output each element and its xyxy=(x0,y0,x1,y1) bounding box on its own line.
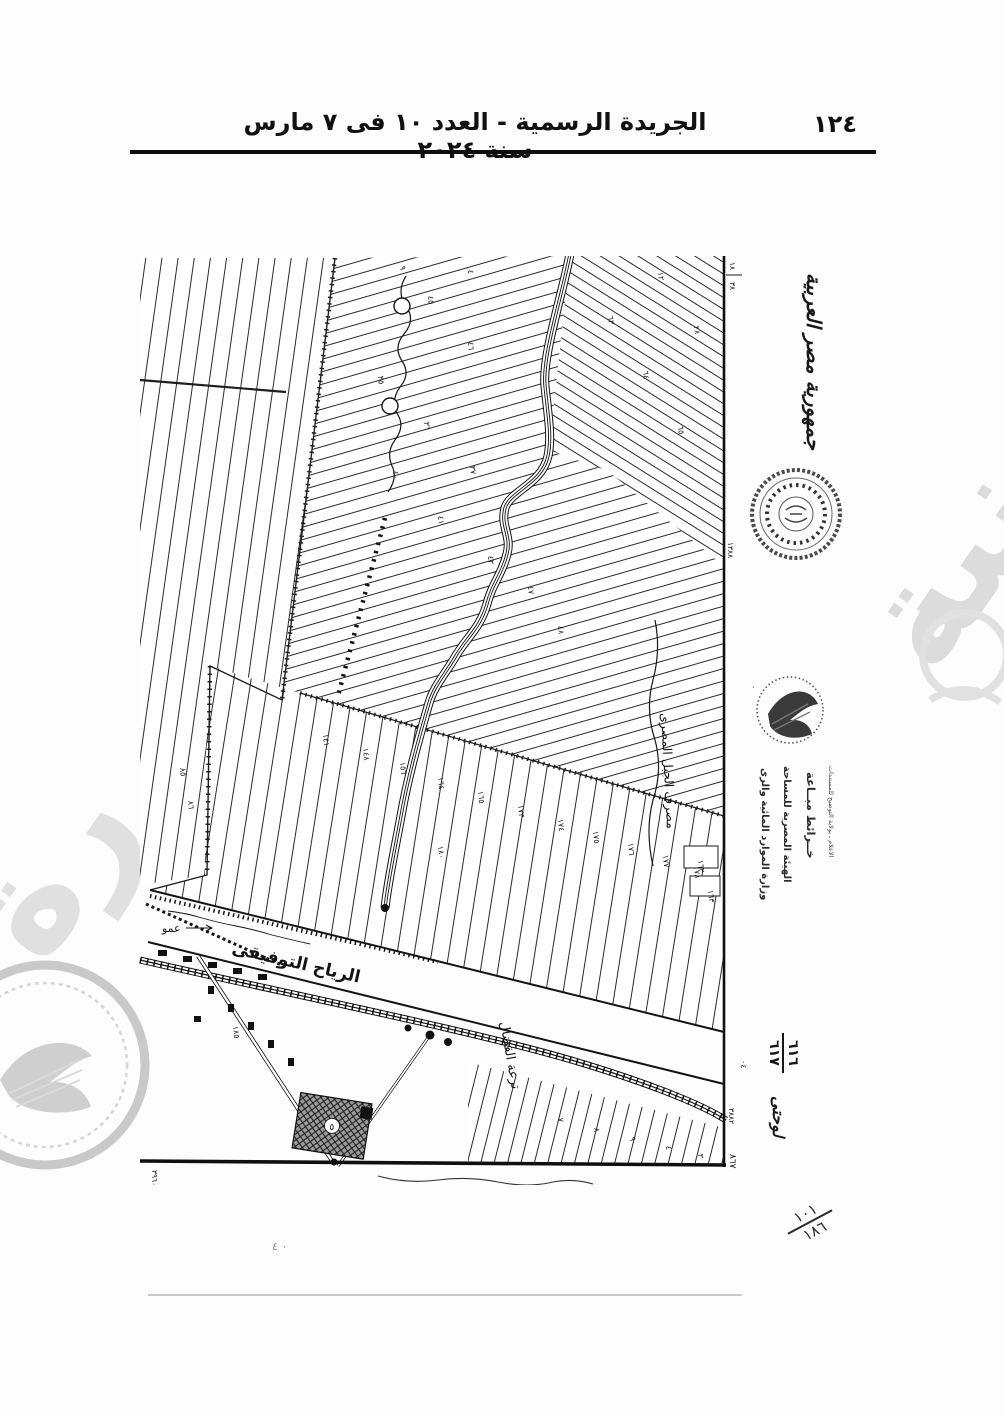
svg-text:٣٨: ٣٨ xyxy=(728,282,737,290)
parcel-number: ٤ xyxy=(664,1145,673,1150)
parcel-number: ١٧٣ xyxy=(516,804,526,818)
parcel-number: ٤٠ xyxy=(391,470,401,479)
parcel-number: ١٧٧ xyxy=(661,854,671,868)
parcel-number: ٦٥ xyxy=(676,425,686,434)
parcel-number: ١٧٤ xyxy=(556,818,566,832)
parcel-number: ١٦٢ xyxy=(696,859,706,873)
svg-text:٨٦٧: ٨٦٧ xyxy=(727,1154,737,1169)
parcel-number: ٣٧ xyxy=(468,465,478,475)
parcel-number: ٤٢ xyxy=(486,555,496,564)
parcel-number: ١٧٦ xyxy=(626,842,636,856)
eagle-stamp-emblem: ، xyxy=(744,668,840,752)
svg-text:،: ، xyxy=(752,682,754,690)
sheet-number-fraction: ٦١٦ ٦١٧ xyxy=(766,1014,800,1092)
parcel-number: ١٨٥ xyxy=(231,1025,241,1039)
svg-text:١٨: ١٨ xyxy=(728,262,737,270)
parcel-number: ١٦٤ xyxy=(436,776,446,790)
parcel-number: ٣٥ xyxy=(376,375,386,384)
footer-rule xyxy=(148,1294,742,1296)
cadastral-map: ٥ ١٨ ٣٨ ١٣٨٨ ٣٨٨٢ ٨٦٧ ٣٩٦٠ الرياح التوفي… xyxy=(138,256,746,1185)
parcel-number: ١٤٨ xyxy=(361,747,371,761)
sheet-side-note: ٠٤ xyxy=(739,1060,748,1069)
header-rule xyxy=(130,150,876,154)
sheet-word: لوحتى xyxy=(769,1096,788,1137)
rayah-tawfiqi-label: الرياح التوفيقى xyxy=(230,939,362,988)
parcel-number: ٤ xyxy=(466,269,475,274)
parcel-number: ١٧٥ xyxy=(591,830,601,844)
parcel-number: ٤٨ xyxy=(556,625,566,635)
parcel-number: ٨٥ xyxy=(178,767,188,776)
parcel-number: ٤٥ xyxy=(426,295,436,304)
page-number: ١٢٤ xyxy=(795,110,875,138)
surveyor-signature-squiggle xyxy=(378,1176,593,1185)
parcel-number: ١٥٦ xyxy=(398,761,408,775)
sheet-number-top: ٦١٦ xyxy=(785,1014,800,1092)
parcel-number: ٢٨ xyxy=(692,325,702,335)
parcel-number: ٤٧ xyxy=(526,585,536,595)
parcel-number: ١٤١ xyxy=(321,733,331,747)
direction-arrow xyxy=(186,925,212,931)
stamp-line-maps-sold: خــرائط مبــاعة xyxy=(804,772,818,859)
stray-marks: ٠ ٤ xyxy=(272,1240,287,1253)
parcel-number: ١٨٠ xyxy=(436,845,446,859)
fraction-bar xyxy=(782,1033,784,1073)
stamp-line-small: الاعلام ـ بولاية التوضيح للمستندات xyxy=(827,766,835,857)
parcel-number: ١٦٣ xyxy=(706,889,716,903)
stamp-line-authority: الهيئة المصرية للمساحة xyxy=(781,766,792,883)
parcel-number: ٩ xyxy=(628,1136,637,1141)
road-note-label: عمو xyxy=(161,922,181,935)
svg-text:٣٩٦٠: ٣٩٦٠ xyxy=(150,1170,159,1185)
parcel-number: ٤١ xyxy=(436,515,446,524)
gazette-page: { "header": { "title": "الجريدة الرسمية … xyxy=(0,0,1004,1417)
parcel-number: ٤٦ xyxy=(466,341,476,350)
round-official-seal xyxy=(748,466,844,562)
archive-fraction: ١٠١ ١٨٦ xyxy=(773,1191,846,1253)
country-title-handwritten: جمهورية مصر العربية xyxy=(802,270,826,450)
parcel-number: ٦٣ xyxy=(606,315,616,325)
parcel-number: ٣٦ xyxy=(422,421,432,430)
sheet-number-bottom: ٦١٧ xyxy=(766,1014,781,1092)
gazette-header-title: الجريدة الرسمية - العدد ١٠ فى ٧ مارس سنة… xyxy=(225,108,725,164)
stamp-line-ministry: وزارة الموارد المائية والرى xyxy=(759,768,770,900)
hatched-building: ٥ xyxy=(292,1093,374,1160)
parcel-number: ٩ xyxy=(398,265,407,270)
parcel-number: ٦٤ xyxy=(641,370,651,379)
svg-text:٣٨٨٢: ٣٨٨٢ xyxy=(727,1108,736,1124)
parcel-number: ١٦٥ xyxy=(476,790,486,804)
watermark-swirl xyxy=(905,590,1004,730)
svg-text:١٣٨٨: ١٣٨٨ xyxy=(726,542,735,558)
watermark-eagle-emblem xyxy=(0,930,160,1200)
parcel-number: ٨٦ xyxy=(186,800,196,809)
parcel-number: ١٢ xyxy=(656,271,666,280)
